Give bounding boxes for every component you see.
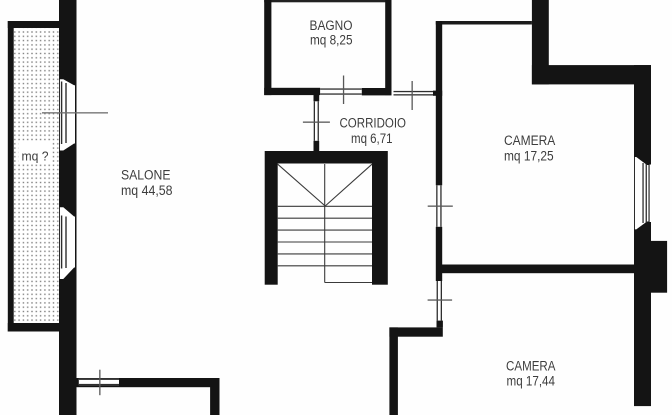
svg-text:SALONE: SALONE xyxy=(121,168,171,183)
svg-text:mq 8,25: mq 8,25 xyxy=(310,33,353,48)
svg-text:CAMERA: CAMERA xyxy=(504,133,555,148)
svg-text:CORRIDOIO: CORRIDOIO xyxy=(340,116,407,131)
svg-text:CAMERA: CAMERA xyxy=(506,358,556,373)
svg-text:mq 44,58: mq 44,58 xyxy=(121,183,173,198)
svg-text:BAGNO: BAGNO xyxy=(310,18,353,33)
svg-text:mq ?: mq ? xyxy=(22,149,49,164)
svg-text:mq 6,71: mq 6,71 xyxy=(351,131,393,146)
svg-text:mq 17,44: mq 17,44 xyxy=(507,373,556,388)
svg-text:mq 17,25: mq 17,25 xyxy=(504,149,554,164)
